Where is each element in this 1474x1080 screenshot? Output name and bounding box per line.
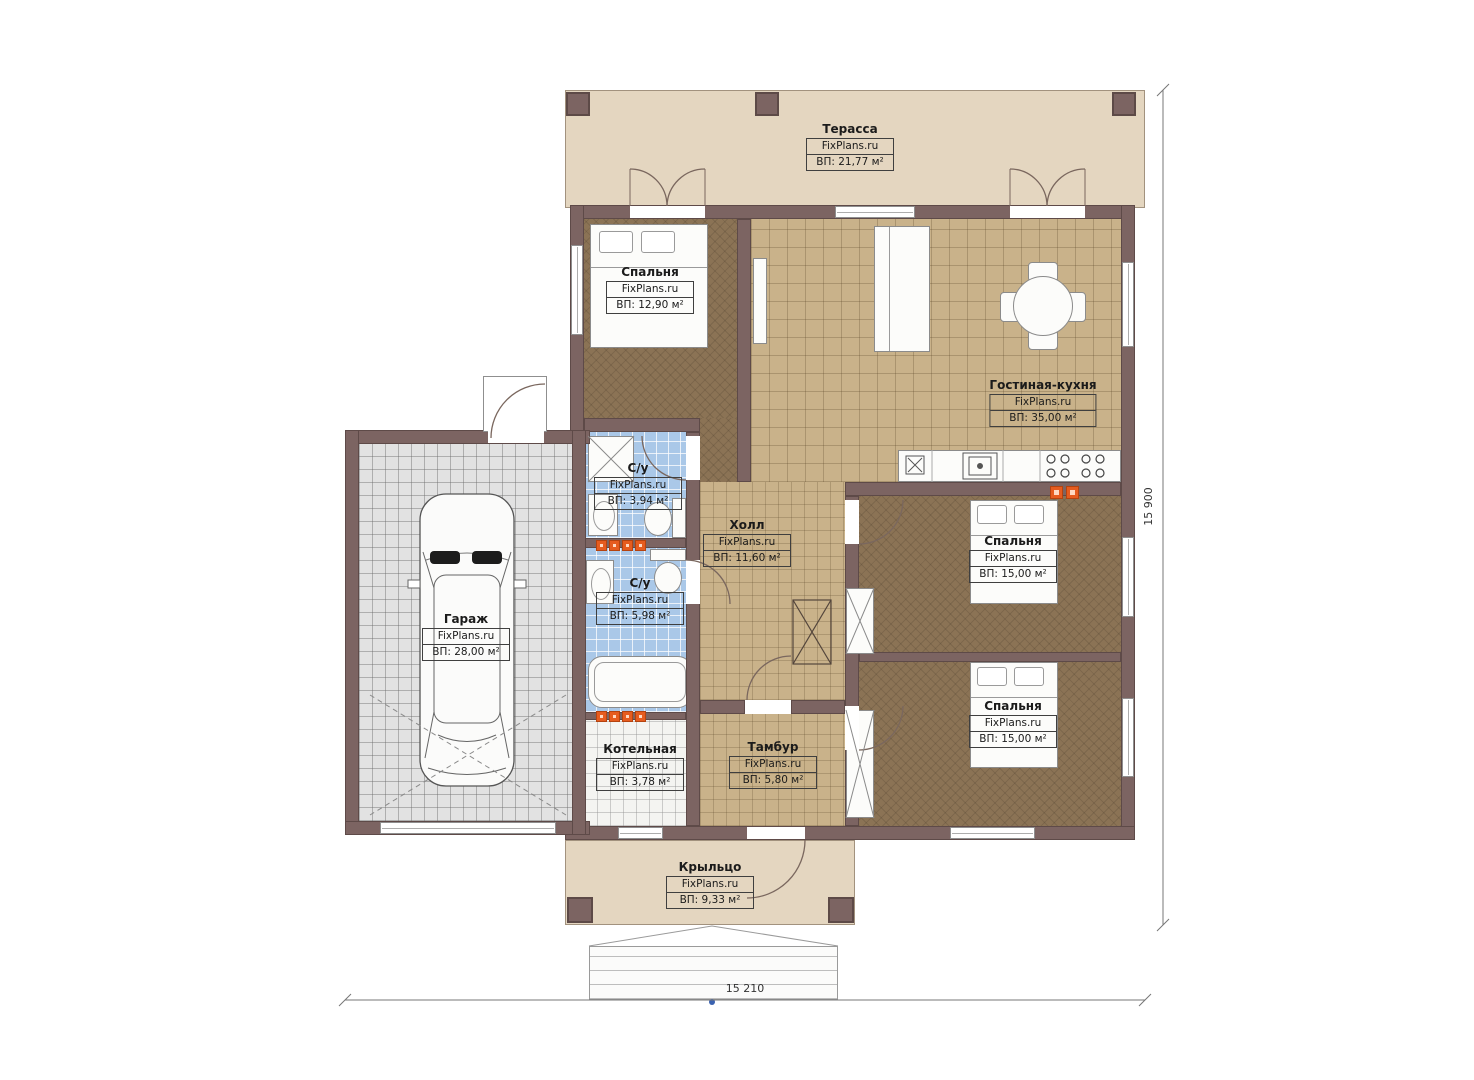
room-area: ВП: 5,80 м²	[730, 773, 816, 788]
site-label: FixPlans.ru	[595, 478, 681, 494]
window	[618, 827, 663, 839]
room-bedroom1-floor-strip	[700, 418, 737, 482]
room-bedroom2-label: Спальня FixPlans.ru ВП: 15,00 м²	[969, 534, 1057, 583]
wall-hall-vestibule-left	[700, 700, 745, 714]
room-name: Спальня	[606, 265, 694, 279]
room-name: Тамбур	[729, 740, 817, 754]
room-name: Холл	[703, 518, 791, 532]
room-bath1-label: С/у FixPlans.ru ВП: 3,94 м²	[594, 461, 682, 510]
room-name: Терасса	[806, 122, 894, 136]
dimension-height-label: 15 900	[1142, 487, 1155, 526]
room-name: С/у	[594, 461, 682, 475]
room-name: Спальня	[969, 534, 1057, 548]
window	[571, 245, 583, 335]
porch-column	[567, 897, 593, 923]
room-name: Гараж	[422, 612, 510, 626]
floor-plan: Терасса FixPlans.ru ВП: 21,77 м² Спальня…	[0, 0, 1474, 1080]
room-vestibule-label: Тамбур FixPlans.ru ВП: 5,80 м²	[729, 740, 817, 789]
radiator	[596, 711, 607, 722]
terrace-column	[755, 92, 779, 116]
room-boiler-label: Котельная FixPlans.ru ВП: 3,78 м²	[596, 742, 684, 791]
toilet-tank	[650, 549, 686, 561]
porch-column	[828, 897, 854, 923]
room-name: Котельная	[596, 742, 684, 756]
kitchen-counter	[898, 450, 1121, 482]
steps-gable-line	[589, 926, 838, 946]
site-label: FixPlans.ru	[667, 877, 753, 893]
door-opening-bedroom2	[845, 500, 859, 544]
room-area: ВП: 5,98 м²	[597, 609, 683, 624]
radiator	[1066, 486, 1079, 499]
garage-door	[380, 822, 556, 834]
room-terrace-label: Терасса FixPlans.ru ВП: 21,77 м²	[806, 122, 894, 171]
radiator	[622, 711, 633, 722]
radiator	[635, 711, 646, 722]
site-label: FixPlans.ru	[597, 759, 683, 775]
site-label: FixPlans.ru	[704, 535, 790, 551]
terrace-column	[566, 92, 590, 116]
window	[1122, 262, 1134, 347]
room-living-floor	[751, 219, 1121, 482]
room-area: ВП: 9,33 м²	[667, 893, 753, 908]
site-label: FixPlans.ru	[970, 716, 1056, 732]
room-area: ВП: 15,00 м²	[970, 732, 1056, 747]
room-bedroom3-label: Спальня FixPlans.ru ВП: 15,00 м²	[969, 699, 1057, 748]
site-label: FixPlans.ru	[607, 282, 693, 298]
door-opening-bedroom3	[845, 706, 859, 750]
room-porch-label: Крыльцо FixPlans.ru ВП: 9,33 м²	[666, 860, 754, 909]
french-door-opening	[630, 206, 705, 218]
dining-table	[1013, 276, 1073, 336]
room-area: ВП: 11,60 м²	[704, 551, 790, 566]
room-name: С/у	[596, 576, 684, 590]
garage-side-entrance-landing	[483, 376, 547, 432]
wall-bedrooms-divider	[859, 652, 1121, 662]
door-opening-bath2	[686, 560, 700, 604]
wall-garage-left	[345, 430, 359, 835]
room-hall-label: Холл FixPlans.ru ВП: 11,60 м²	[703, 518, 791, 567]
site-label: FixPlans.ru	[970, 551, 1056, 567]
sofa	[874, 226, 930, 352]
radiator	[635, 540, 646, 551]
dimension-width-label: 15 210	[345, 982, 1145, 995]
window	[835, 206, 915, 218]
door-opening-vestibule	[745, 700, 791, 714]
terrace-column	[1112, 92, 1136, 116]
room-bedroom1-label: Спальня FixPlans.ru ВП: 12,90 м²	[606, 265, 694, 314]
room-area: ВП: 3,78 м²	[597, 775, 683, 790]
room-garage-label: Гараж FixPlans.ru ВП: 28,00 м²	[422, 612, 510, 661]
room-area: ВП: 35,00 м²	[990, 411, 1095, 426]
room-name: Гостиная-кухня	[989, 378, 1096, 392]
site-label: FixPlans.ru	[807, 139, 893, 155]
wall-bedroom1-bottom	[584, 418, 700, 432]
room-hall-floor	[700, 482, 845, 700]
bathtub	[588, 656, 692, 708]
wall-hall-vestibule-right	[791, 700, 845, 714]
room-area: ВП: 12,90 м²	[607, 298, 693, 313]
site-label: FixPlans.ru	[990, 395, 1095, 411]
site-label: FixPlans.ru	[423, 629, 509, 645]
french-door-opening	[1010, 206, 1085, 218]
radiator	[609, 711, 620, 722]
window	[950, 827, 1035, 839]
wall-garage-right	[572, 430, 586, 835]
radiator	[622, 540, 633, 551]
window	[1122, 698, 1134, 777]
wall-bath-hall	[686, 432, 700, 826]
room-area: ВП: 28,00 м²	[423, 645, 509, 660]
radiator	[596, 540, 607, 551]
room-living-label: Гостиная-кухня FixPlans.ru ВП: 35,00 м²	[989, 378, 1096, 427]
wall-bedroom1-living	[737, 219, 751, 482]
wall-living-bottom	[845, 482, 1121, 496]
window	[1122, 537, 1134, 617]
door-opening-bath1	[686, 436, 700, 480]
room-area: ВП: 21,77 м²	[807, 155, 893, 170]
side-door-opening	[488, 431, 544, 443]
site-label: FixPlans.ru	[597, 593, 683, 609]
room-area: ВП: 15,00 м²	[970, 567, 1056, 582]
site-label: FixPlans.ru	[730, 757, 816, 773]
radiator	[609, 540, 620, 551]
tv-console	[753, 258, 767, 344]
room-area: ВП: 3,94 м²	[595, 494, 681, 509]
room-name: Крыльцо	[666, 860, 754, 874]
entrance-door-opening	[747, 827, 805, 839]
room-name: Спальня	[969, 699, 1057, 713]
radiator	[1050, 486, 1063, 499]
room-bath2-label: С/у FixPlans.ru ВП: 5,98 м²	[596, 576, 684, 625]
closet	[846, 588, 874, 654]
wall-garage-top	[345, 430, 590, 444]
